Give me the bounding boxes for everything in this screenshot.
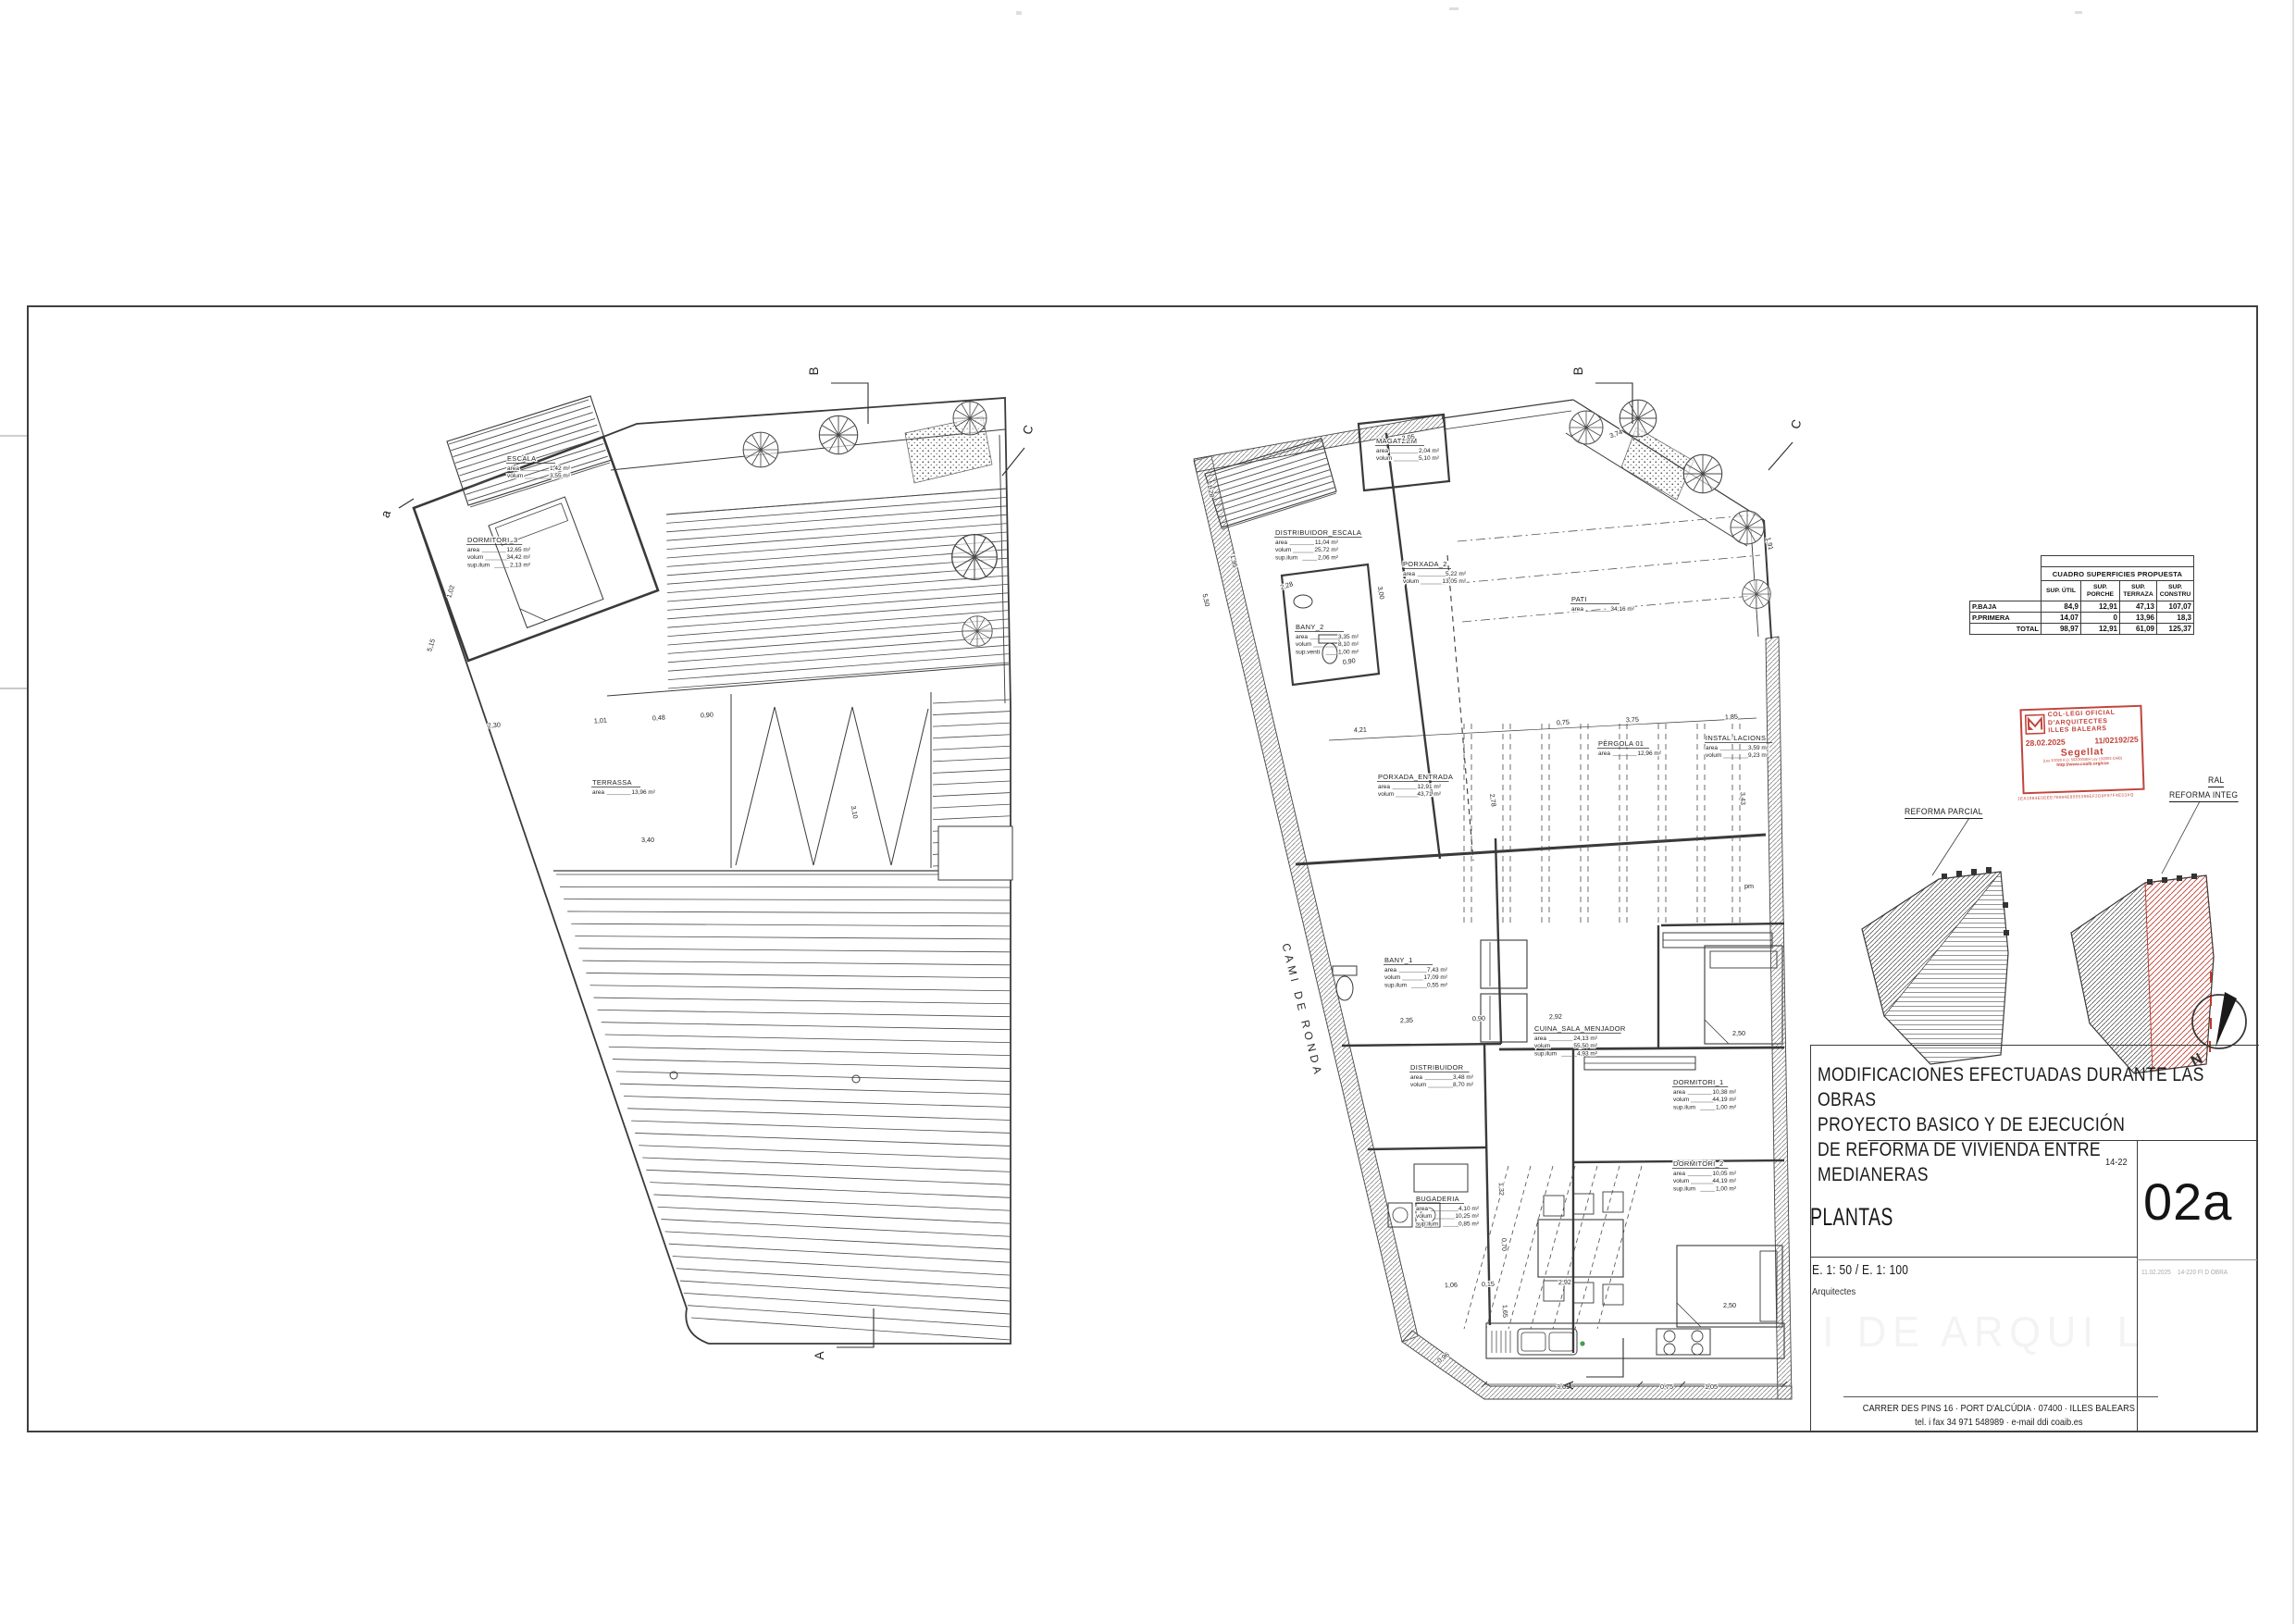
bleedthrough-watermark: I DE ARQUI L — [1822, 1307, 2145, 1357]
fold-mark-2 — [0, 688, 27, 689]
coaib-logo — [2025, 713, 2046, 735]
titleblock-divider-h3 — [1810, 1257, 2137, 1258]
table-title: CUADRO SUPERFICIES PROPUESTA — [2042, 567, 2194, 581]
label-reforma-parcial: REFORMA PARCIAL — [1905, 807, 1983, 819]
sheet-number: 02a — [2143, 1172, 2232, 1232]
areas-summary-table: CUADRO SUPERFICIES PROPUESTASUP. ÚTILSUP… — [1969, 555, 2194, 635]
titleblock-divider-h1 — [1810, 1045, 2259, 1046]
table-value: 125,37 — [2157, 624, 2194, 635]
table-value: 12,91 — [2081, 601, 2120, 613]
scanned-plan-sheet: N ESCALAarea1,42 m²volum3,55 m²DORMITORI… — [0, 0, 2296, 1624]
sheetnum-underline — [2137, 1259, 2257, 1260]
table-cell — [1970, 567, 2042, 581]
label-reforma-integral: REFORMA INTEG — [2169, 790, 2238, 802]
table-value: 61,09 — [2120, 624, 2157, 635]
table-value: 47,13 — [2120, 601, 2157, 613]
sheet-note-phase: 14-220 FI D OBRA — [2178, 1270, 2228, 1278]
sheet-note-date: 11.02.2025 — [2141, 1270, 2171, 1278]
modification-note-line1: MODIFICACIONES EFECTUADAS DURANTE LAS OB… — [1818, 1062, 2210, 1112]
table-col-header: SUP.PORCHE — [2081, 581, 2120, 601]
table-value: 0 — [2081, 613, 2120, 624]
table-value: 18,3 — [2157, 613, 2194, 624]
drawing-title: PLANTAS — [1810, 1203, 1893, 1232]
table-row-label: P.BAJA — [1970, 601, 2042, 613]
table-value: 12,91 — [2081, 624, 2120, 635]
scan-speck — [1449, 7, 1458, 10]
project-code: 14-22 — [2105, 1157, 2128, 1168]
table-col-header: SUP. ÚTIL — [2042, 581, 2081, 601]
titleblock-divider-v — [1810, 1045, 1811, 1432]
table-col-header: SUP.TERRAZA — [2120, 581, 2157, 601]
table-value: 14,07 — [2042, 613, 2081, 624]
table-row-label: TOTAL — [1970, 624, 2042, 635]
fold-mark-1 — [0, 435, 27, 437]
table-value: 84,9 — [2042, 601, 2081, 613]
scan-speck — [2075, 11, 2082, 14]
stamp-date: 28.02.2025 — [2026, 737, 2066, 747]
table-col-header: SUP.CONSTRU — [2157, 581, 2194, 601]
table-top-strip — [2042, 556, 2194, 567]
address-line2: tel. i fax 34 971 548989 · e-mail ddi co… — [1842, 1417, 2156, 1428]
table-value: 107,07 — [2157, 601, 2194, 613]
table-value: 13,96 — [2120, 613, 2157, 624]
table-value: 98,97 — [2042, 624, 2081, 635]
modification-note-line2: PROYECTO BASICO Y DE EJECUCIÓN — [1818, 1112, 2125, 1137]
scale-text: E. 1: 50 / E. 1: 100 — [1812, 1262, 1908, 1278]
discipline-label: Arquitectes — [1812, 1286, 1855, 1297]
stamp-organization: COL·LEGI OFICIAL D'ARQUITECTES ILLES BAL… — [2048, 710, 2116, 736]
stamp-file-number: 11/02192/25 — [2094, 735, 2139, 746]
table-cell — [1970, 581, 2042, 601]
table-cell — [1970, 556, 2042, 567]
modification-note: MODIFICACIONES EFECTUADAS DURANTE LAS OB… — [1818, 1062, 2296, 1187]
stamp-org-line3: ILLES BALEARS — [2048, 725, 2116, 736]
sheet-number-notes: 11.02.2025 14-220 FI D OBRA — [2141, 1262, 2232, 1279]
coaib-stamp: COL·LEGI OFICIAL D'ARQUITECTES ILLES BAL… — [2019, 705, 2144, 795]
paper-edge-shadow — [2292, 0, 2294, 1624]
label-reforma-integral-wrap: RAL — [2208, 775, 2224, 787]
scan-speck — [1016, 11, 1022, 15]
address-rule — [1843, 1396, 2158, 1397]
table-row-label: P.PRIMERA — [1970, 613, 2042, 624]
